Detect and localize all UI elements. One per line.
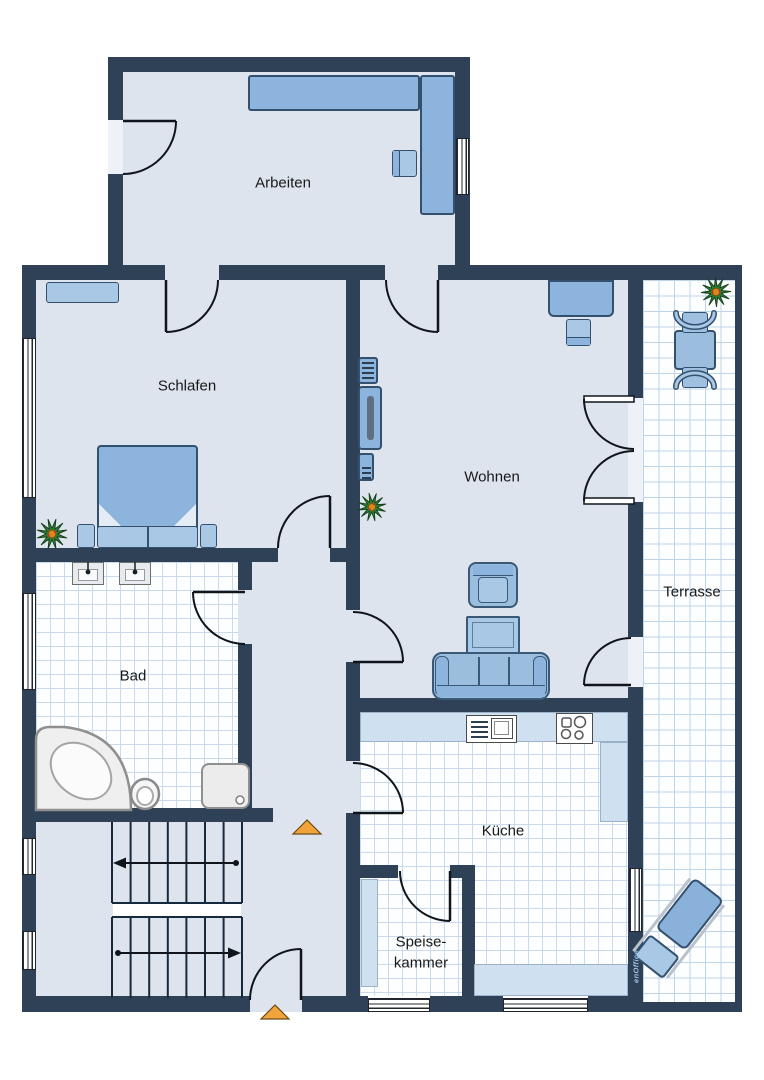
kitchen-sink — [466, 715, 517, 743]
window — [22, 593, 36, 690]
watermark-logo: enOffice — [628, 934, 644, 998]
floor-passage — [273, 808, 346, 822]
window — [629, 868, 642, 932]
wall — [346, 813, 360, 1012]
wall — [643, 1002, 742, 1012]
desk — [420, 75, 455, 215]
wall — [346, 698, 643, 712]
wall — [346, 662, 360, 761]
floor-plan: Arbeiten Schlafen Wohnen Bad Küche Speis… — [0, 0, 764, 1080]
desk — [248, 75, 420, 111]
door-threshold — [346, 761, 360, 813]
media-shelf — [358, 357, 378, 384]
kitchen-counter — [600, 742, 628, 822]
sink-basin — [491, 718, 513, 739]
door-threshold — [108, 120, 123, 174]
room-label-terrasse: Terrasse — [663, 584, 721, 601]
wall — [735, 280, 742, 1002]
desk-chair — [566, 319, 591, 346]
office-chair — [392, 150, 417, 177]
floor-kueche — [360, 712, 628, 996]
sink — [119, 562, 151, 585]
floor-corridor — [252, 562, 346, 808]
coffee-table — [466, 616, 520, 654]
room-label-bad: Bad — [120, 668, 147, 685]
wall — [108, 57, 123, 120]
wall — [108, 174, 123, 280]
wall — [22, 808, 273, 822]
drainboard — [471, 721, 488, 738]
wall — [108, 57, 470, 72]
wall — [22, 996, 250, 1012]
door-threshold — [628, 637, 643, 687]
sink-basin — [78, 569, 98, 581]
door-threshold — [346, 610, 360, 662]
window — [22, 838, 36, 875]
tv-screen — [367, 396, 374, 440]
wall — [238, 562, 252, 590]
media-shelf — [358, 453, 374, 481]
terrace-chair — [682, 367, 708, 388]
armchair-back — [473, 565, 513, 576]
bed-mattress — [97, 445, 198, 528]
blanket-fold — [174, 504, 196, 526]
tv — [358, 386, 382, 450]
wall — [360, 865, 398, 878]
door-threshold — [628, 398, 643, 502]
terrace-chair — [682, 312, 708, 333]
shower — [201, 763, 250, 809]
kitchen-counter — [474, 964, 628, 996]
desk — [548, 280, 614, 317]
dresser — [46, 282, 119, 303]
terrace-table — [674, 330, 716, 370]
sofa — [432, 652, 550, 700]
room-label-speisekammer-line2: kammer — [394, 955, 448, 972]
wall — [22, 548, 278, 562]
table-inset — [472, 622, 514, 648]
room-label-speisekammer-line1: Speise- — [396, 934, 447, 951]
sofa-back — [437, 685, 545, 697]
sink-basin — [125, 569, 145, 581]
door-threshold — [165, 265, 219, 280]
wall — [430, 996, 503, 1012]
shelf-slots — [362, 467, 371, 479]
window — [22, 338, 36, 498]
armchair — [468, 562, 518, 608]
blanket-fold — [99, 504, 121, 526]
floor-hall — [36, 822, 346, 996]
chair-back — [393, 151, 400, 176]
nightstand — [77, 524, 95, 548]
wall — [628, 502, 643, 637]
sofa-seat-divider — [508, 657, 510, 686]
nightstand — [200, 524, 217, 548]
door-threshold — [250, 996, 302, 1012]
room-label-kueche: Küche — [482, 823, 525, 840]
pantry-shelf — [361, 879, 378, 987]
armchair-seat — [478, 577, 508, 603]
window — [456, 138, 469, 195]
bed-headboard — [97, 526, 198, 548]
window — [22, 931, 36, 970]
room-label-arbeiten: Arbeiten — [255, 175, 311, 192]
chair-back — [567, 337, 590, 345]
basin-inner — [494, 721, 509, 735]
room-label-wohnen: Wohnen — [464, 469, 520, 486]
window — [368, 998, 430, 1012]
sink — [72, 562, 104, 585]
wall — [628, 265, 643, 398]
room-label-schlafen: Schlafen — [158, 378, 216, 395]
door-threshold — [238, 590, 252, 644]
shelf-slots — [362, 362, 374, 381]
sofa-seat-divider — [478, 657, 480, 686]
headboard-divider — [147, 527, 149, 547]
stove — [556, 713, 593, 744]
door-threshold — [278, 548, 330, 562]
door-threshold — [385, 265, 438, 280]
window — [503, 998, 588, 1012]
